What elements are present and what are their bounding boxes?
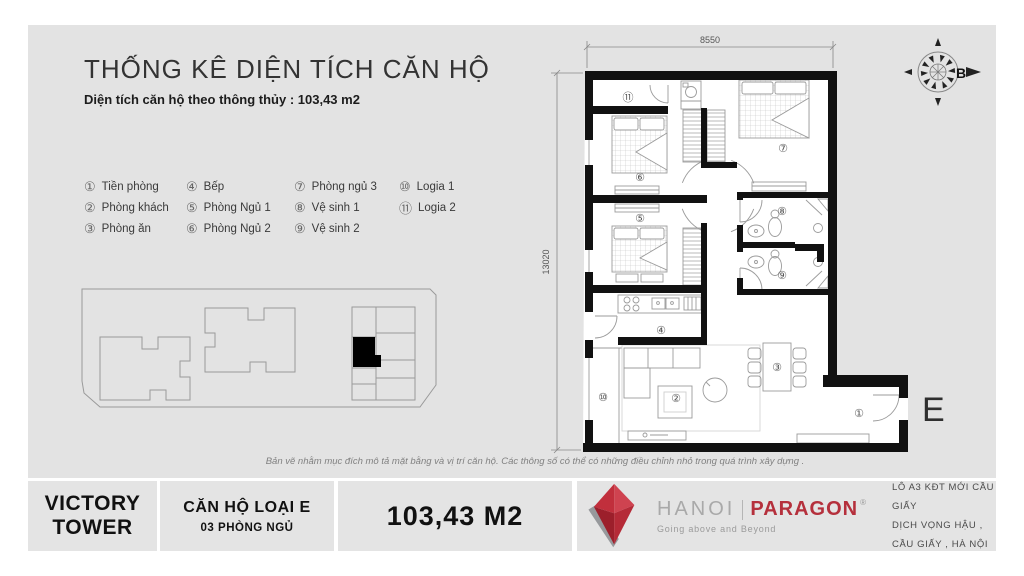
- legend-item: ①Tiền phòng: [84, 176, 169, 197]
- project-name-line1: VICTORY: [45, 492, 141, 516]
- disclaimer-text: Bản vẽ nhằm mục đích mô tả mặt bằng và v…: [60, 456, 1010, 467]
- area-subtitle: Diện tích căn hộ theo thông thủy : 103,4…: [84, 92, 360, 107]
- legend-label: Phòng khách: [102, 202, 169, 214]
- brand-divider: [742, 500, 743, 520]
- brand-wordmark: HANOI PARAGON ® Going above and Beyond: [657, 498, 866, 534]
- room-number-icon: ③: [84, 221, 96, 237]
- page-title: THỐNG KÊ DIỆN TÍCH CĂN HỘ: [84, 54, 490, 85]
- legend-label: Bếp: [204, 181, 224, 193]
- brand-logo: HANOI PARAGON ® Going above and Beyond: [585, 482, 866, 550]
- address-line2: DỊCH VỌNG HẬU , CẦU GIẤY , HÀ NỘI: [892, 516, 996, 554]
- floorplan-sheet: THỐNG KÊ DIỆN TÍCH CĂN HỘ Diện tích căn …: [0, 0, 1024, 576]
- room-label-entry: ①: [854, 408, 864, 420]
- legend-label: Phòng Ngủ 1: [204, 202, 271, 214]
- unit-area-label: 103,43 M2: [387, 501, 524, 532]
- project-name-line2: TOWER: [45, 516, 141, 540]
- legend-label: Phòng ăn: [102, 223, 151, 235]
- legend-item: ②Phòng khách: [84, 197, 169, 218]
- compass-arrow-left: [904, 69, 912, 75]
- legend-col-4: ⑩Logia 1 ⑪Logia 2: [399, 176, 456, 218]
- brand-address: LÔ A3 KĐT MỚI CẦU GIẤY DỊCH VỌNG HẬU , C…: [892, 478, 996, 554]
- room-number-icon: ①: [84, 179, 96, 195]
- legend-label: Vệ sinh 2: [312, 223, 360, 235]
- legend-item: ⑦Phòng ngủ 3: [294, 176, 377, 197]
- room-label-bedroom3: ⑦: [778, 143, 788, 155]
- legend-item: ⑧Vệ sinh 1: [294, 197, 377, 218]
- legend-label: Logia 2: [418, 202, 456, 214]
- compass-north-label: B: [956, 65, 966, 81]
- room-label-kitchen: ④: [656, 325, 666, 337]
- room-number-icon: ⑧: [294, 200, 306, 216]
- room-number-icon: ⑤: [186, 200, 198, 216]
- room-number-icon: ⑦: [294, 179, 306, 195]
- legend-label: Logia 1: [417, 181, 455, 193]
- legend-label: Tiền phòng: [102, 181, 159, 193]
- footer-brand: HANOI PARAGON ® Going above and Beyond L…: [577, 481, 996, 551]
- legend-label: Vệ sinh 1: [312, 202, 360, 214]
- room-number-icon: ⑥: [186, 221, 198, 237]
- footer-area: 103,43 M2: [338, 481, 572, 551]
- compass-arrow-down: [935, 98, 941, 106]
- registered-mark-icon: ®: [860, 498, 866, 507]
- footer-project: VICTORY TOWER: [28, 481, 157, 551]
- legend-col-1: ①Tiền phòng ②Phòng khách ③Phòng ăn: [84, 176, 169, 239]
- brand-tagline: Going above and Beyond: [657, 524, 866, 534]
- room-label-bath1: ⑧: [777, 206, 787, 218]
- current-unit-marker: [353, 337, 381, 367]
- legend-item: ⑥Phòng Ngủ 2: [186, 218, 271, 239]
- room-number-icon: ④: [186, 179, 198, 195]
- room-label-living: ②: [671, 393, 681, 405]
- room-number-icon: ②: [84, 200, 96, 216]
- floorplan-drawing: 8550 13020: [540, 28, 1010, 470]
- room-label-logia2: ⑪: [623, 91, 634, 104]
- dim-width-label: 8550: [700, 35, 720, 45]
- bedroom-count-label: 03 PHÒNG NGỦ: [201, 522, 294, 534]
- address-line1: LÔ A3 KĐT MỚI CẦU GIẤY: [892, 478, 996, 516]
- unit-letter: E: [922, 391, 945, 429]
- room-label-bedroom2: ⑥: [635, 172, 645, 184]
- building-1-outline: [100, 337, 190, 400]
- legend-item: ⑪Logia 2: [399, 197, 456, 218]
- building-2-outline: [205, 308, 295, 372]
- room-label-logia1: ⑩: [598, 392, 608, 404]
- compass-rose: B: [904, 38, 981, 106]
- room-number-icon: ⑪: [399, 198, 412, 217]
- compass-arrow-up: [935, 38, 941, 46]
- legend-item: ⑩Logia 1: [399, 176, 456, 197]
- room-label-dining: ③: [772, 362, 782, 374]
- legend-label: Phòng ngủ 3: [312, 181, 377, 193]
- room-number-icon: ⑨: [294, 221, 306, 237]
- room-number-icon: ⑩: [399, 179, 411, 195]
- site-keyplan: [78, 283, 442, 415]
- legend-item: ⑤Phòng Ngủ 1: [186, 197, 271, 218]
- legend-col-2: ④Bếp ⑤Phòng Ngủ 1 ⑥Phòng Ngủ 2: [186, 176, 271, 239]
- unit-type-label: CĂN HỘ LOẠI E: [183, 499, 310, 517]
- brand-paragon: PARAGON: [750, 498, 858, 521]
- legend-item: ⑨Vệ sinh 2: [294, 218, 377, 239]
- compass-north-arrow: [966, 67, 981, 77]
- legend-label: Phòng Ngủ 2: [204, 223, 271, 235]
- brand-hanoi: HANOI: [657, 498, 735, 521]
- legend-item: ③Phòng ăn: [84, 218, 169, 239]
- legend-col-3: ⑦Phòng ngủ 3 ⑧Vệ sinh 1 ⑨Vệ sinh 2: [294, 176, 377, 239]
- room-label-bath2: ⑨: [777, 270, 787, 282]
- legend-item: ④Bếp: [186, 176, 271, 197]
- dim-height-label: 13020: [541, 249, 551, 274]
- footer-unit-type: CĂN HỘ LOẠI E 03 PHÒNG NGỦ: [160, 481, 334, 551]
- room-label-bedroom1: ⑤: [635, 213, 645, 225]
- paragon-diamond-icon: [585, 482, 647, 550]
